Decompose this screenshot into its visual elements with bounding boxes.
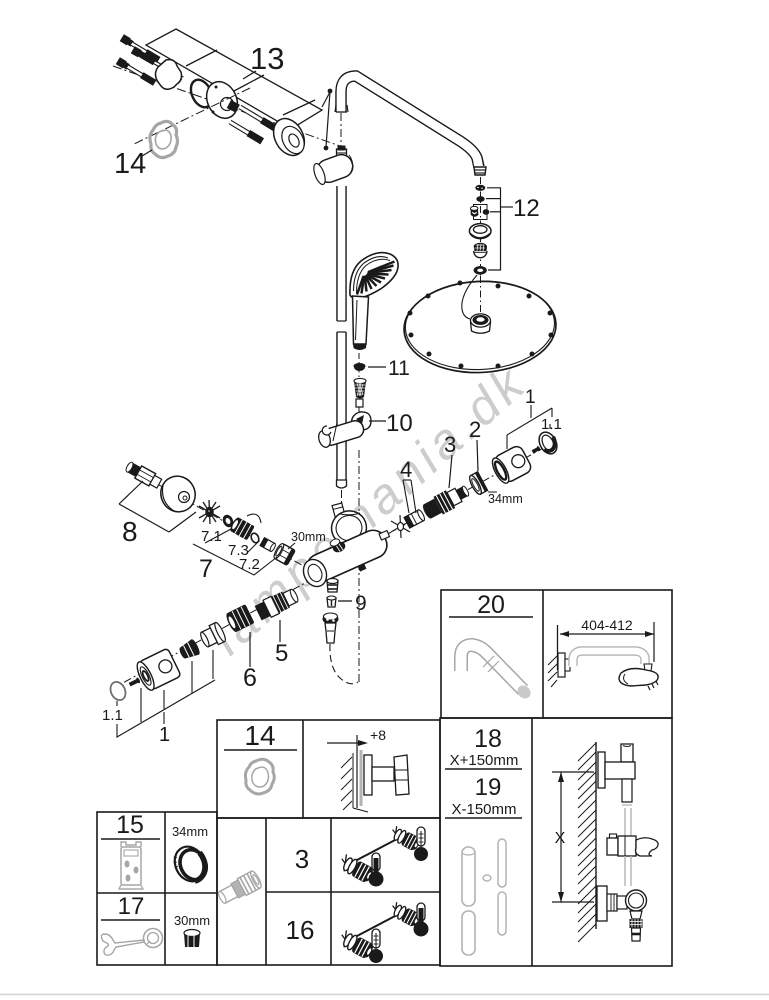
svg-text:18: 18: [474, 725, 502, 753]
svg-text:4: 4: [400, 457, 412, 482]
svg-text:15: 15: [116, 811, 144, 839]
svg-text:8: 8: [122, 516, 138, 547]
svg-text:X: X: [555, 830, 566, 847]
svg-text:12: 12: [513, 195, 540, 222]
svg-text:X+150mm: X+150mm: [450, 752, 519, 769]
svg-text:30mm: 30mm: [291, 530, 326, 544]
svg-text:3: 3: [444, 432, 456, 457]
svg-text:14: 14: [114, 148, 146, 180]
svg-text:X-150mm: X-150mm: [451, 801, 516, 818]
svg-text:3: 3: [295, 844, 309, 874]
svg-text:7.2: 7.2: [239, 556, 260, 573]
svg-text:34mm: 34mm: [172, 824, 208, 839]
svg-text:+8: +8: [370, 727, 386, 743]
svg-text:34mm: 34mm: [488, 492, 523, 506]
svg-text:1: 1: [525, 387, 536, 408]
svg-text:2: 2: [469, 417, 481, 442]
svg-text:6: 6: [243, 664, 257, 692]
svg-text:20: 20: [477, 591, 505, 619]
svg-text:16: 16: [286, 915, 315, 945]
svg-text:9: 9: [355, 592, 367, 615]
svg-text:13: 13: [250, 41, 284, 76]
svg-text:5: 5: [275, 640, 288, 667]
svg-text:7.1: 7.1: [201, 528, 222, 545]
svg-text:19: 19: [475, 774, 502, 801]
svg-text:30mm: 30mm: [174, 913, 210, 928]
svg-text:17: 17: [118, 893, 145, 920]
svg-text:11: 11: [388, 357, 410, 380]
svg-text:1.1: 1.1: [541, 416, 562, 433]
svg-text:1: 1: [159, 724, 170, 746]
svg-text:10: 10: [386, 410, 413, 437]
svg-text:14: 14: [244, 720, 275, 751]
svg-text:1.1: 1.1: [102, 707, 123, 724]
svg-text:404-412: 404-412: [581, 617, 633, 633]
svg-text:7: 7: [199, 555, 213, 583]
